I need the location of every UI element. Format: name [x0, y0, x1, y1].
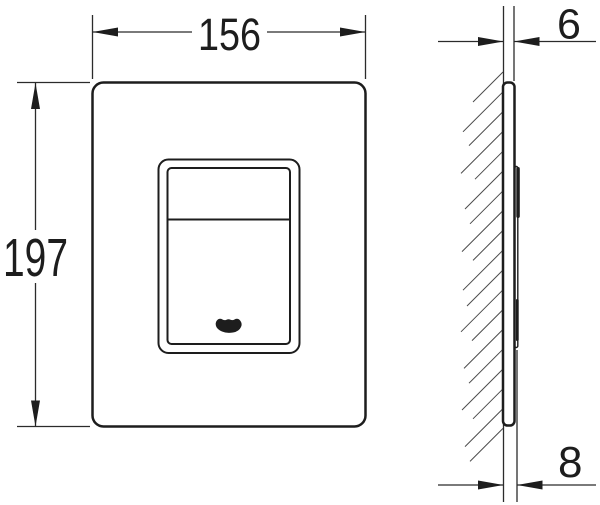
hatch-line	[467, 270, 503, 306]
hatch-line	[470, 428, 503, 461]
hatch-line	[465, 171, 503, 209]
hatch-line	[473, 230, 503, 260]
arrow-left-icon	[93, 28, 119, 37]
hatch-line	[469, 349, 503, 383]
arrow-right-icon	[478, 37, 504, 46]
hatch-line	[462, 369, 503, 410]
technical-drawing: 156 197	[0, 0, 600, 505]
drawing-canvas: 156 197	[0, 0, 600, 505]
bottom-depth-dimension-label: 8	[558, 438, 582, 487]
hatch-line	[473, 72, 503, 102]
plate-side-profile	[503, 83, 515, 426]
hatch-line	[469, 112, 503, 146]
arrow-left-icon	[514, 37, 540, 46]
hatch-line	[464, 329, 503, 368]
arrow-right-icon	[340, 28, 366, 37]
hatch-line	[473, 389, 503, 419]
hatch-line	[463, 250, 503, 290]
height-dimension-label: 197	[3, 228, 68, 288]
front-view: 156 197	[3, 9, 366, 427]
hatch-line	[472, 310, 503, 341]
height-dimension: 197	[3, 83, 90, 427]
arrow-down-icon	[31, 401, 40, 427]
width-dimension: 156	[93, 9, 366, 79]
hatch-line	[470, 191, 503, 224]
hatch-line	[461, 290, 503, 332]
hatch-line	[465, 409, 503, 447]
top-depth-dimension-label: 6	[557, 1, 581, 49]
width-dimension-label: 156	[198, 9, 261, 60]
button-bottom-protrusion	[516, 299, 519, 341]
hatch-line	[461, 131, 503, 173]
hatch-line	[462, 211, 503, 252]
hatch-line	[463, 92, 503, 132]
arrow-left-icon	[517, 481, 543, 490]
button-top-protrusion	[516, 167, 520, 218]
top-depth-dimension: 6	[438, 1, 596, 49]
wall-hatching	[461, 72, 503, 461]
arrow-right-icon	[478, 481, 504, 490]
side-view: 6 8	[438, 1, 596, 503]
arrow-up-icon	[31, 83, 40, 109]
